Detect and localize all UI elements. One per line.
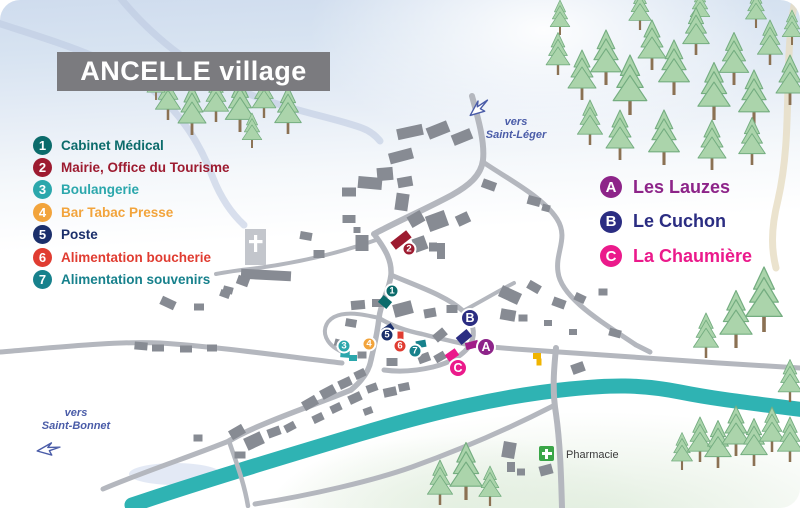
building bbox=[365, 382, 378, 393]
building bbox=[354, 227, 361, 233]
map-marker-5: 5 bbox=[380, 328, 395, 343]
building bbox=[363, 406, 374, 416]
pine-tree-icon bbox=[782, 10, 800, 45]
building bbox=[392, 300, 414, 317]
direction-line: vers bbox=[505, 116, 528, 128]
building bbox=[538, 463, 553, 476]
building bbox=[544, 320, 552, 326]
building bbox=[266, 426, 281, 439]
building bbox=[283, 421, 296, 433]
legend-badge: 4 bbox=[33, 203, 52, 222]
pine-tree-icon bbox=[719, 33, 748, 85]
building bbox=[569, 329, 577, 335]
legend-label: Mairie, Office du Tourisme bbox=[61, 160, 230, 175]
building bbox=[388, 148, 414, 165]
building bbox=[152, 345, 164, 352]
building bbox=[235, 452, 246, 459]
legend-label: Le Cuchon bbox=[633, 211, 726, 232]
building bbox=[398, 382, 410, 392]
building bbox=[358, 352, 367, 359]
landmark-building bbox=[537, 359, 542, 366]
pharmacy-cross-icon bbox=[539, 446, 554, 461]
legend-label: Cabinet Médical bbox=[61, 138, 164, 153]
legend-label: Les Lauzes bbox=[633, 177, 730, 198]
building bbox=[570, 361, 586, 375]
legend-item-5: 5Poste bbox=[33, 224, 230, 246]
legend-places: ALes LauzesBLe CuchonCLa Chaumière bbox=[600, 170, 752, 274]
building bbox=[507, 462, 515, 472]
map-marker-4: 4 bbox=[362, 337, 377, 352]
building bbox=[134, 341, 148, 350]
map-marker-C: C bbox=[448, 358, 468, 378]
legend-label: Bar Tabac Presse bbox=[61, 205, 173, 220]
legend-badge: 7 bbox=[33, 270, 52, 289]
map-marker-A: A bbox=[476, 337, 496, 357]
pine-tree-icon bbox=[568, 50, 596, 100]
legend-item-7: 7Alimentation souvenirs bbox=[33, 268, 230, 290]
building bbox=[343, 215, 356, 223]
legend-label: Poste bbox=[61, 227, 98, 242]
pharmacy-label: Pharmacie bbox=[566, 449, 619, 461]
building bbox=[159, 296, 176, 310]
pine-tree-icon bbox=[591, 30, 622, 85]
map-title: ANCELLE village bbox=[57, 52, 330, 91]
pine-tree-icon bbox=[659, 40, 690, 95]
pine-tree-icon bbox=[629, 0, 651, 30]
arrow-saint-bonnet-icon bbox=[37, 441, 60, 456]
building bbox=[500, 308, 517, 321]
building bbox=[207, 345, 217, 352]
map-marker-6: 6 bbox=[393, 339, 408, 354]
building bbox=[394, 193, 409, 212]
legend-item-C: CLa Chaumière bbox=[600, 239, 752, 274]
map-marker-B: B bbox=[460, 308, 480, 328]
pine-tree-icon bbox=[546, 33, 570, 76]
legend-badge: C bbox=[600, 245, 622, 267]
building bbox=[551, 297, 566, 310]
building bbox=[194, 435, 203, 442]
direction-line: Saint-Léger bbox=[486, 129, 547, 141]
building bbox=[194, 304, 204, 311]
building bbox=[397, 176, 414, 188]
map-marker-2: 2 bbox=[402, 242, 417, 257]
pine-tree-icon bbox=[746, 0, 767, 28]
pine-tree-icon bbox=[613, 55, 647, 115]
building bbox=[387, 358, 398, 366]
building bbox=[455, 211, 471, 226]
village-map: ANCELLE village 1Cabinet Médical2Mairie,… bbox=[0, 0, 800, 508]
pine-tree-icon bbox=[577, 100, 602, 145]
building bbox=[329, 402, 342, 414]
legend-badge: 6 bbox=[33, 248, 52, 267]
pine-tree-icon bbox=[638, 20, 666, 70]
pine-tree-icon bbox=[479, 466, 501, 506]
legend-label: Alimentation souvenirs bbox=[61, 272, 210, 287]
pine-tree-icon bbox=[741, 419, 768, 467]
legend-badge: B bbox=[600, 211, 622, 233]
legend-item-A: ALes Lauzes bbox=[600, 170, 752, 205]
legend-label: La Chaumière bbox=[633, 246, 752, 267]
building bbox=[481, 178, 497, 191]
building bbox=[501, 441, 517, 459]
direction-saint-bonnet: vers Saint-Bonnet bbox=[25, 407, 127, 433]
building bbox=[342, 188, 356, 197]
legend-badge: A bbox=[600, 176, 622, 198]
legend-item-B: BLe Cuchon bbox=[600, 205, 752, 240]
building bbox=[425, 210, 449, 232]
pine-tree-icon bbox=[739, 118, 766, 166]
landmark-building bbox=[349, 355, 357, 361]
building bbox=[517, 469, 525, 476]
building bbox=[519, 315, 528, 322]
building bbox=[426, 120, 451, 139]
pine-tree-icon bbox=[739, 70, 770, 125]
building bbox=[599, 289, 608, 296]
church-icon bbox=[245, 229, 266, 265]
pine-tree-icon bbox=[698, 120, 726, 170]
legend-item-6: 6Alimentation boucherie bbox=[33, 246, 230, 268]
legend-badge: 3 bbox=[33, 180, 52, 199]
pine-tree-icon bbox=[746, 267, 782, 332]
pine-tree-icon bbox=[649, 110, 680, 165]
legend-item-1: 1Cabinet Médical bbox=[33, 134, 230, 156]
legend-item-3: 3Boulangerie bbox=[33, 179, 230, 201]
building bbox=[608, 328, 622, 339]
map-marker-1: 1 bbox=[385, 284, 400, 299]
building bbox=[358, 176, 383, 190]
building bbox=[180, 346, 192, 353]
legend-badge: 5 bbox=[33, 225, 52, 244]
building bbox=[429, 243, 437, 252]
map-marker-3: 3 bbox=[337, 339, 352, 354]
legend-badge: 1 bbox=[33, 136, 52, 155]
direction-saint-leger: vers Saint-Léger bbox=[475, 116, 557, 142]
building bbox=[299, 231, 312, 241]
building bbox=[437, 243, 445, 259]
building bbox=[314, 250, 325, 258]
legend-badge: 2 bbox=[33, 158, 52, 177]
building bbox=[351, 300, 366, 310]
legend-item-4: 4Bar Tabac Presse bbox=[33, 201, 230, 223]
pine-tree-icon bbox=[275, 87, 302, 135]
building bbox=[451, 128, 474, 146]
legend-services: 1Cabinet Médical2Mairie, Office du Touri… bbox=[33, 134, 230, 291]
legend-item-2: 2Mairie, Office du Tourisme bbox=[33, 156, 230, 178]
legend-label: Boulangerie bbox=[61, 182, 139, 197]
pine-tree-icon bbox=[606, 110, 634, 160]
building bbox=[345, 318, 357, 328]
building bbox=[526, 280, 542, 294]
building bbox=[447, 305, 458, 313]
pine-tree-icon bbox=[757, 20, 782, 65]
direction-line: Saint-Bonnet bbox=[42, 420, 110, 432]
landmark-building bbox=[533, 353, 541, 359]
pine-tree-icon bbox=[427, 460, 452, 505]
pine-tree-icon bbox=[720, 291, 752, 349]
pine-tree-icon bbox=[550, 0, 570, 35]
building bbox=[383, 386, 398, 398]
pine-tree-icon bbox=[178, 85, 206, 135]
direction-line: vers bbox=[65, 407, 88, 419]
building bbox=[356, 235, 369, 251]
building bbox=[423, 308, 436, 319]
legend-label: Alimentation boucherie bbox=[61, 250, 211, 265]
building bbox=[311, 412, 324, 424]
pine-tree-icon bbox=[777, 417, 800, 462]
building bbox=[396, 124, 424, 140]
map-marker-7: 7 bbox=[408, 344, 423, 359]
pine-tree-icon bbox=[693, 313, 718, 358]
